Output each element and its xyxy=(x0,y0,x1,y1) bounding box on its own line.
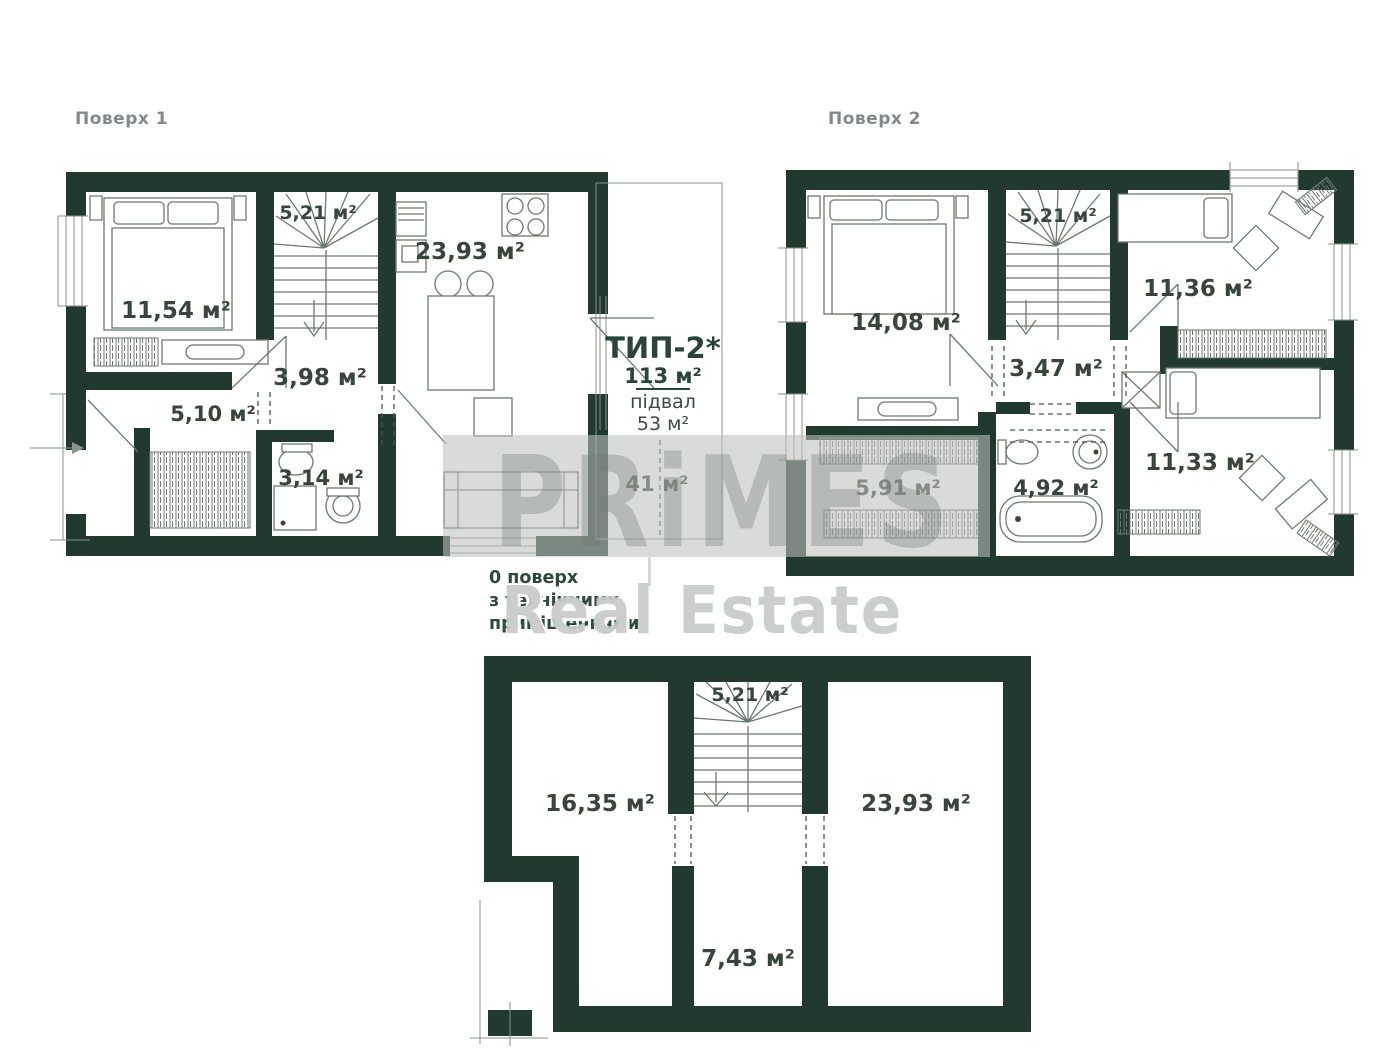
floor1-hall-label: 3,98 м² xyxy=(273,365,367,391)
floorplan-canvas: Поверх 1 Поверх 2 xyxy=(0,0,1400,1049)
floor2-child2-label: 11,33 м² xyxy=(1145,450,1255,476)
type-basement-label: підвал xyxy=(630,391,696,413)
floor2-child1-icons xyxy=(1118,177,1337,358)
desk-chair-icon xyxy=(1233,225,1278,270)
floor1-bedroom-label: 11,54 м² xyxy=(121,298,231,324)
floor1-wardrobe-shelves xyxy=(150,452,250,528)
floor1-dresser-icon xyxy=(94,338,268,366)
bathtub-icon xyxy=(1000,496,1102,542)
radiator-hatch xyxy=(1118,510,1200,534)
floor1-kitchen-label: 23,93 м² xyxy=(415,239,525,265)
floor2-bed-icon xyxy=(808,196,968,314)
floor1-wardrobe-label: 5,10 м² xyxy=(170,402,256,426)
wardrobe-hatch xyxy=(1178,330,1326,358)
floor1-hall-door-swing xyxy=(398,390,446,444)
dining-table-icon xyxy=(428,296,494,390)
fridge-icon xyxy=(396,202,426,236)
floor1-stairs-label: 5,21 м² xyxy=(279,202,356,224)
floor2-bathroom-label: 4,92 м² xyxy=(1013,476,1099,500)
basement-storage1-label: 16,35 м² xyxy=(545,791,655,817)
type-total-area: 113 м² xyxy=(624,364,702,388)
sink-icon xyxy=(1073,435,1107,469)
watermark-brand: PRiMES xyxy=(493,429,955,576)
watermark-caption: Real Estate Real Estate xyxy=(501,572,906,652)
floor2-dresser-icon xyxy=(858,398,958,420)
basement-plan: 5,21 м² 16,35 м² 23,93 м² 7,43 м² xyxy=(470,656,1031,1046)
floor2-child1-label: 11,36 м² xyxy=(1143,276,1253,302)
floor2-bedroom-door-swing xyxy=(950,334,998,386)
basement-stairs-label: 5,21 м² xyxy=(711,684,788,706)
floor1-entrance-opening xyxy=(66,450,86,514)
type-title: ТИП-2* xyxy=(605,331,721,365)
floorplan-sheet: Поверх 1 Поверх 2 xyxy=(0,0,1400,1049)
radiator-icon xyxy=(1297,520,1339,556)
watermark-caption-text: Real Estate xyxy=(501,572,903,649)
toilet-icon xyxy=(1006,440,1038,464)
basement-outer-walls xyxy=(484,656,1031,1032)
basement-hall-label: 7,43 м² xyxy=(701,946,795,972)
floor2-bedroom-label: 14,08 м² xyxy=(851,310,961,336)
desk-icon xyxy=(1275,479,1327,528)
floor1-heading: Поверх 1 xyxy=(75,109,168,129)
chair-icon xyxy=(435,271,461,297)
floor2-stairs-label: 5,21 м² xyxy=(1019,205,1096,227)
floor2-hall-label: 3,47 м² xyxy=(1009,356,1103,382)
floor1-bathroom-label: 3,14 м² xyxy=(278,466,364,490)
basement-storage2-label: 23,93 м² xyxy=(861,791,971,817)
floor2-heading: Поверх 2 xyxy=(828,109,921,129)
chair-icon xyxy=(467,271,493,297)
shower-icon xyxy=(274,486,316,530)
type-info-block: ТИП-2* 113 м² підвал 53 м² xyxy=(605,331,721,435)
